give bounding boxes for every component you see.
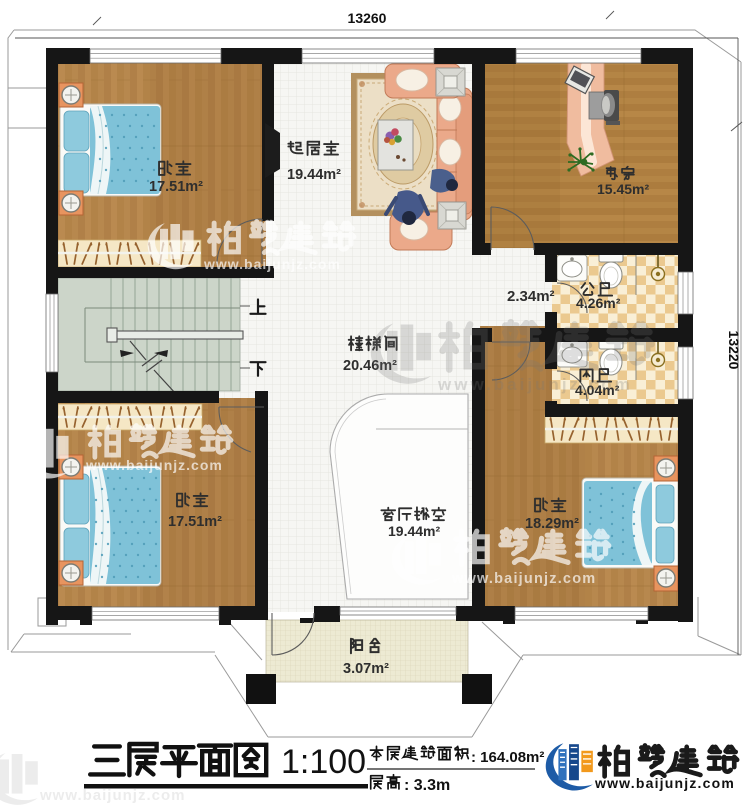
svg-text:www.baijunjz.com: www.baijunjz.com xyxy=(451,571,596,587)
svg-text:13260: 13260 xyxy=(348,10,387,26)
svg-text:17.51m²: 17.51m² xyxy=(168,514,222,530)
svg-text:: 3.3m: : 3.3m xyxy=(404,777,450,794)
svg-text:www.baijunjz.com: www.baijunjz.com xyxy=(85,457,223,473)
svg-text:: 164.08m²: : 164.08m² xyxy=(471,749,544,766)
svg-text:17.51m²: 17.51m² xyxy=(149,179,203,195)
svg-text:2.34m²: 2.34m² xyxy=(507,288,555,305)
svg-text:www.baijunjz.com: www.baijunjz.com xyxy=(39,787,185,804)
svg-text:4.26m²: 4.26m² xyxy=(576,295,621,311)
svg-text:www.baijunjz.com: www.baijunjz.com xyxy=(594,775,735,791)
svg-text:19.44m²: 19.44m² xyxy=(388,523,440,539)
svg-text:1:100: 1:100 xyxy=(281,743,366,781)
svg-text:www.baijunjz.com: www.baijunjz.com xyxy=(203,256,341,272)
svg-text:www.baijunjz.com: www.baijunjz.com xyxy=(437,375,633,394)
svg-text:13220: 13220 xyxy=(726,331,742,370)
svg-text:3.07m²: 3.07m² xyxy=(343,661,389,677)
svg-text:15.45m²: 15.45m² xyxy=(597,181,649,197)
svg-text:19.44m²: 19.44m² xyxy=(287,167,341,183)
